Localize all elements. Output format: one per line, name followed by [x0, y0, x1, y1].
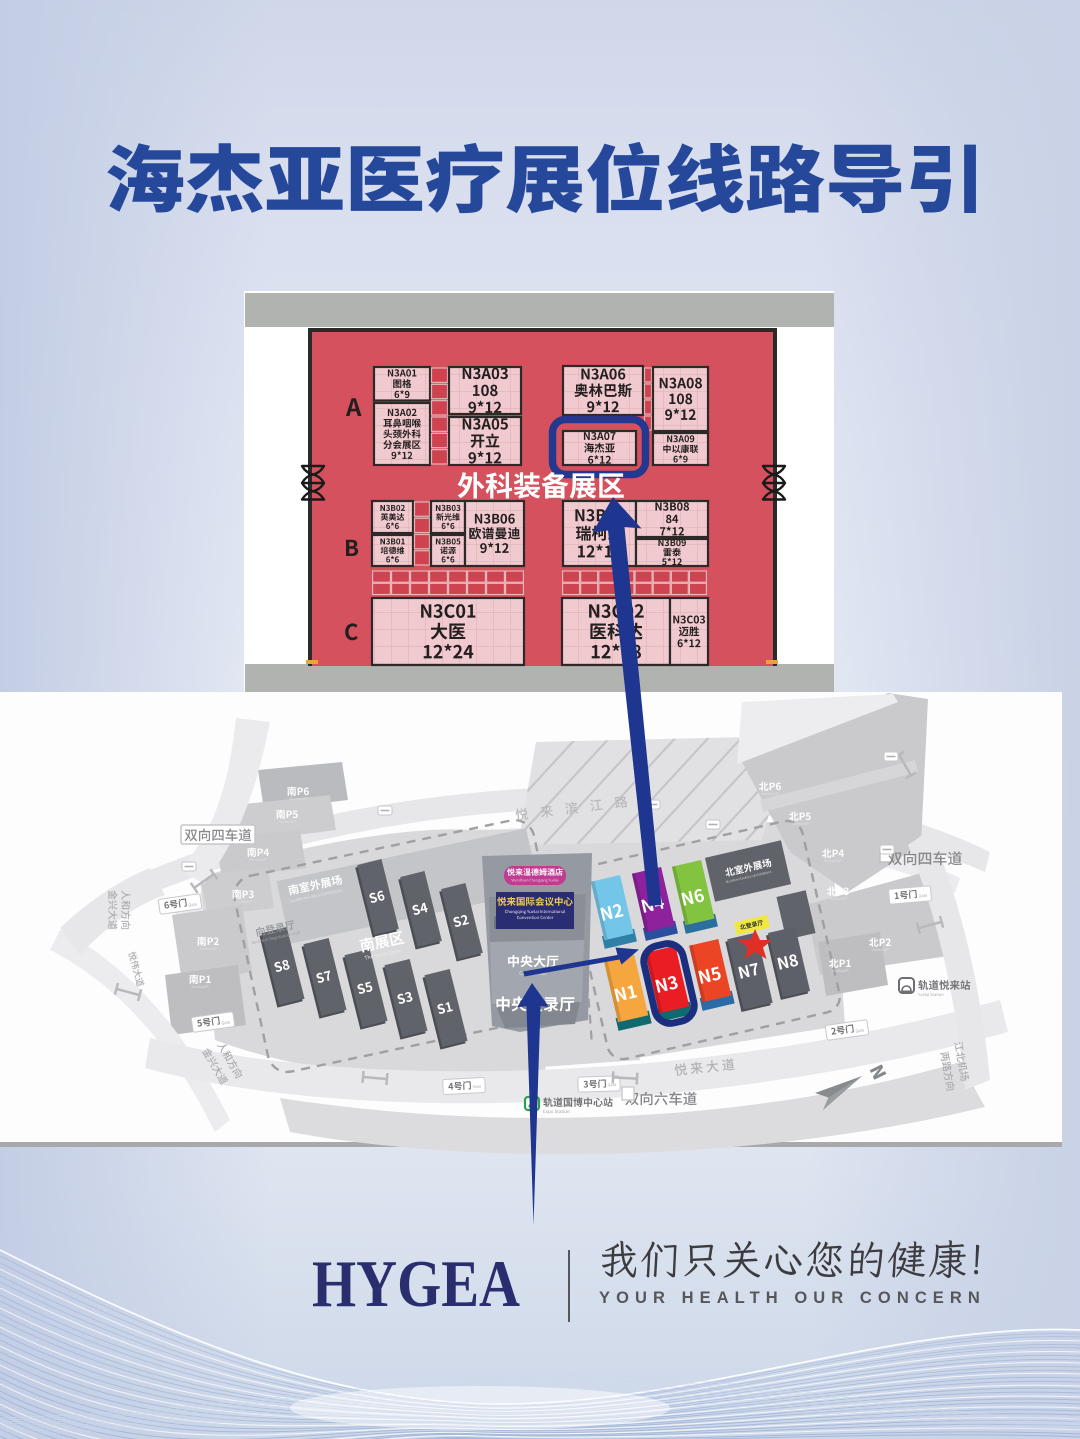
svg-text:HYGEA: HYGEA	[312, 1247, 520, 1321]
svg-text:YOUR HEALTH OUR CONCERN: YOUR HEALTH OUR CONCERN	[599, 1289, 985, 1307]
